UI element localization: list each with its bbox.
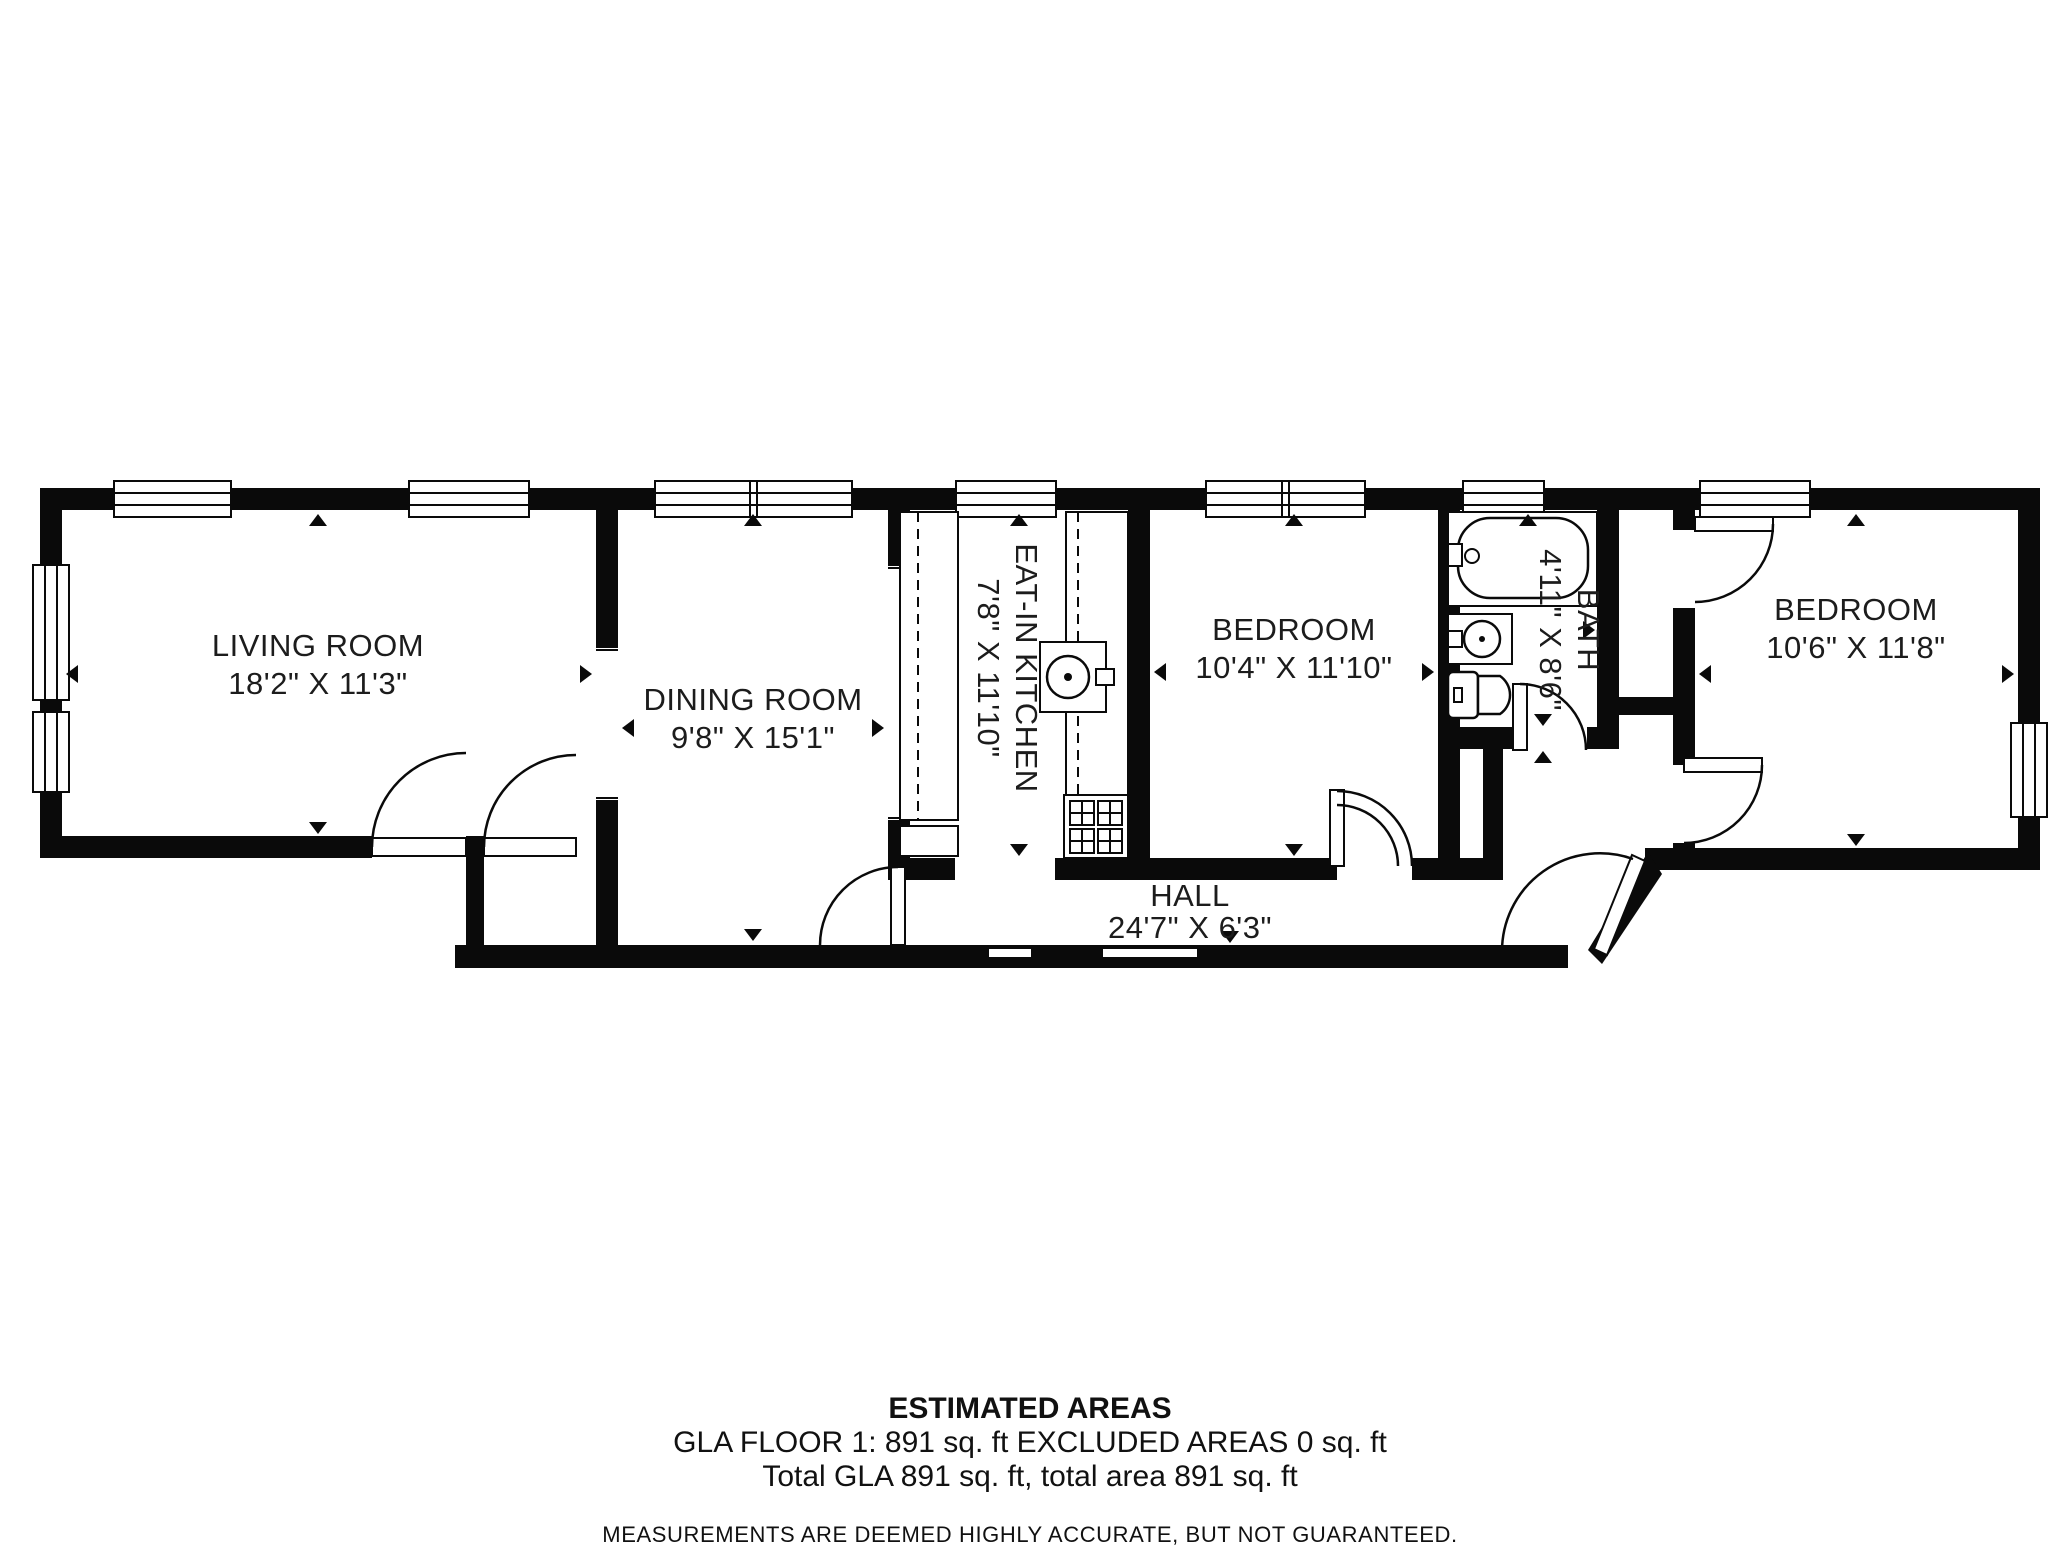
- door-icon: [372, 753, 466, 856]
- total-gla-line: Total GLA 891 sq. ft, total area 891 sq.…: [330, 1460, 1730, 1494]
- wall-niche: [988, 948, 1032, 958]
- floor-plan: LIVING ROOM 18'2" X 11'3" DINING ROOM 9'…: [0, 0, 2048, 1536]
- room-dims: 9'8" X 15'1": [671, 720, 835, 755]
- gla-floor-line: GLA FLOOR 1: 891 sq. ft EXCLUDED AREAS 0…: [330, 1426, 1730, 1460]
- window-icon: [956, 481, 1056, 517]
- room-label-kitchen: EAT-IN KITCHEN 7'8" X 11'10": [971, 543, 1044, 792]
- counter-icon: [900, 512, 958, 856]
- stove-icon: [1064, 795, 1128, 858]
- room-label-hall: HALL 24'7" X 6'3": [1108, 878, 1272, 945]
- room-name: HALL: [1150, 878, 1230, 913]
- burner-icon: [1070, 801, 1094, 825]
- window-icon: [1206, 481, 1365, 517]
- door-icon: [484, 755, 576, 856]
- window-icon: [655, 481, 852, 517]
- room-name: BATH: [1571, 589, 1606, 671]
- kitchen-sink-icon: [1040, 642, 1114, 712]
- room-dims: 10'4" X 11'10": [1195, 650, 1392, 685]
- toilet-icon: [1448, 672, 1510, 718]
- window-icon: [409, 481, 529, 517]
- window-icon: [33, 712, 69, 792]
- room-name: BEDROOM: [1774, 592, 1938, 627]
- room-label-living: LIVING ROOM 18'2" X 11'3": [212, 628, 424, 701]
- window-icon: [33, 565, 69, 700]
- room-label-bedroom1: BEDROOM 10'4" X 11'10": [1195, 612, 1392, 685]
- sink-icon: [1448, 614, 1512, 664]
- room-name: LIVING ROOM: [212, 628, 424, 663]
- door-icon: [820, 867, 905, 945]
- door-icon: [1330, 790, 1412, 866]
- estimated-areas-title: ESTIMATED AREAS: [330, 1392, 1730, 1426]
- room-dims: 10'6" X 11'8": [1766, 630, 1945, 665]
- estimated-areas-block: ESTIMATED AREAS GLA FLOOR 1: 891 sq. ft …: [330, 1392, 1730, 1548]
- room-label-dining: DINING ROOM 9'8" X 15'1": [643, 682, 862, 755]
- room-label-bedroom2: BEDROOM 10'6" X 11'8": [1766, 592, 1945, 665]
- room-dims: 4'11" X 8'6": [1533, 549, 1568, 711]
- room-name: BEDROOM: [1212, 612, 1376, 647]
- entry-door-icon: [1502, 853, 1645, 955]
- room-dims: 24'7" X 6'3": [1108, 910, 1272, 945]
- burner-icon: [1098, 829, 1122, 853]
- burner-icon: [1098, 801, 1122, 825]
- burner-icon: [1070, 829, 1094, 853]
- window-icon: [1700, 481, 1810, 517]
- door-icon: [1695, 517, 1773, 602]
- room-dims: 18'2" X 11'3": [228, 666, 407, 701]
- room-dims: 7'8" X 11'10": [971, 578, 1006, 757]
- window-icon: [114, 481, 231, 517]
- wall-niche: [1102, 948, 1198, 958]
- disclaimer-line: MEASUREMENTS ARE DEEMED HIGHLY ACCURATE,…: [330, 1522, 1730, 1548]
- room-name: DINING ROOM: [643, 682, 862, 717]
- door-icon: [1684, 758, 1762, 843]
- room-name: EAT-IN KITCHEN: [1009, 543, 1044, 792]
- window-icon: [2011, 723, 2047, 817]
